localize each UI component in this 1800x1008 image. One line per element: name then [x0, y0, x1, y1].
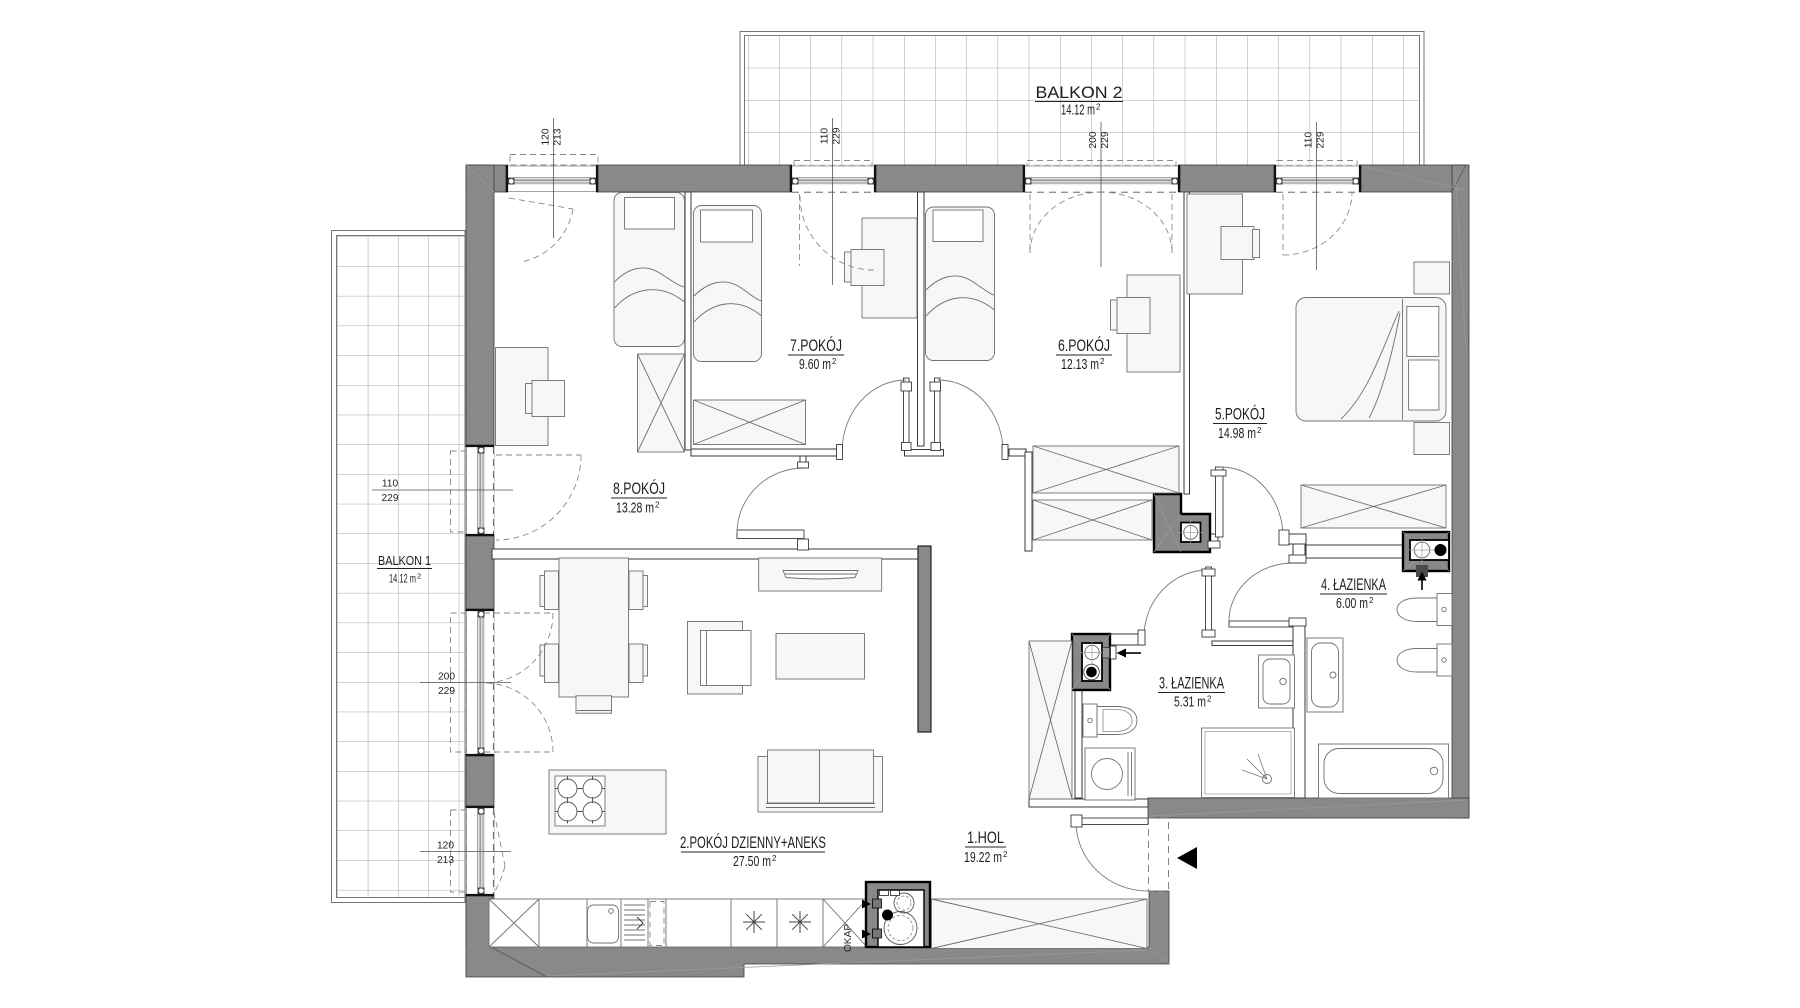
svg-text:14.12 m: 14.12 m: [1061, 103, 1095, 119]
svg-text:2: 2: [772, 854, 777, 863]
svg-text:229: 229: [438, 686, 455, 697]
svg-text:4. ŁAZIENKA: 4. ŁAZIENKA: [1321, 576, 1386, 594]
svg-text:229: 229: [1316, 131, 1327, 148]
svg-text:OKAP: OKAP: [843, 924, 854, 953]
svg-text:1.HOL: 1.HOL: [967, 829, 1004, 847]
svg-text:8.POKÓJ: 8.POKÓJ: [613, 479, 665, 498]
svg-text:2: 2: [1100, 357, 1105, 366]
svg-text:7.POKÓJ: 7.POKÓJ: [790, 336, 842, 355]
svg-text:2: 2: [832, 357, 837, 366]
svg-text:6.POKÓJ: 6.POKÓJ: [1058, 336, 1110, 355]
svg-text:229: 229: [832, 127, 843, 144]
svg-text:200: 200: [438, 672, 455, 683]
svg-text:6.00 m: 6.00 m: [1336, 596, 1368, 612]
svg-text:229: 229: [1100, 131, 1111, 148]
svg-text:2: 2: [1207, 695, 1212, 704]
svg-text:5.POKÓJ: 5.POKÓJ: [1215, 405, 1265, 424]
svg-text:12.13 m: 12.13 m: [1061, 357, 1099, 373]
svg-text:2.POKÓJ DZIENNY+ANEKS: 2.POKÓJ DZIENNY+ANEKS: [680, 833, 826, 852]
svg-text:9.60 m: 9.60 m: [799, 357, 831, 373]
svg-text:213: 213: [437, 855, 454, 866]
svg-text:2: 2: [655, 501, 660, 510]
svg-text:3. ŁAZIENKA: 3. ŁAZIENKA: [1159, 675, 1224, 693]
svg-text:13.28 m: 13.28 m: [616, 501, 654, 517]
svg-text:229: 229: [382, 493, 399, 504]
svg-text:2: 2: [1369, 596, 1374, 605]
svg-text:BALKON 2: BALKON 2: [1036, 84, 1123, 102]
svg-text:120: 120: [541, 128, 552, 145]
svg-text:5.31 m: 5.31 m: [1174, 695, 1206, 711]
svg-text:19.22 m: 19.22 m: [964, 850, 1002, 866]
svg-text:2: 2: [1257, 426, 1262, 435]
svg-text:213: 213: [553, 128, 564, 145]
svg-text:2: 2: [417, 572, 421, 581]
svg-text:2: 2: [1096, 103, 1101, 112]
svg-text:BALKON 1: BALKON 1: [378, 554, 431, 568]
svg-text:120: 120: [437, 841, 454, 852]
svg-text:110: 110: [820, 128, 831, 145]
svg-text:14.12 m: 14.12 m: [389, 572, 416, 586]
svg-text:14.98 m: 14.98 m: [1218, 426, 1256, 442]
svg-text:110: 110: [1304, 132, 1315, 149]
svg-text:2: 2: [1003, 850, 1008, 859]
svg-text:110: 110: [382, 479, 399, 490]
svg-text:200: 200: [1088, 131, 1099, 148]
svg-text:27.50 m: 27.50 m: [733, 854, 771, 870]
